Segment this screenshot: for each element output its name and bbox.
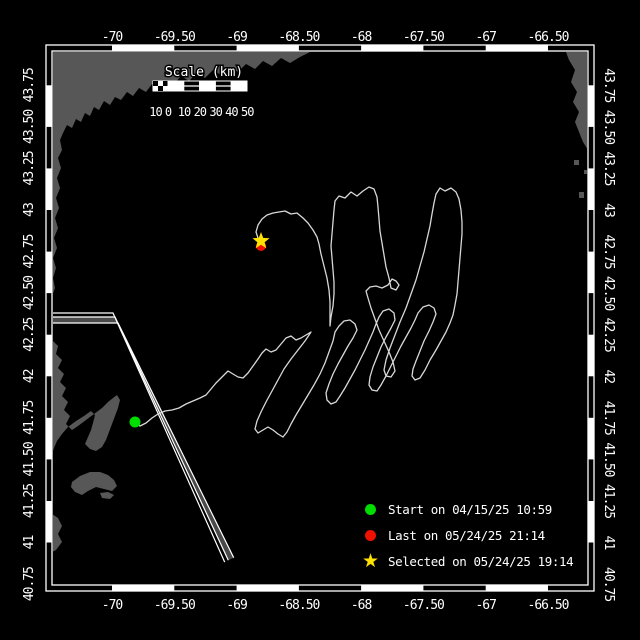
lat-tick-label-left: 43.25 <box>22 151 37 185</box>
legend-start-label: Start on 04/15/25 10:59 <box>388 502 552 517</box>
lat-tick-label-right: 42 <box>601 369 616 383</box>
lat-tick-label-left: 41.75 <box>22 401 37 435</box>
border-segment-right <box>588 210 594 252</box>
scale-checker-cell <box>153 81 158 86</box>
scale-bar-label: 40 <box>225 105 238 119</box>
lat-tick-label-left: 42 <box>22 369 37 383</box>
lon-tick-label-top: -67.50 <box>403 30 444 45</box>
scale-bar-label: 50 <box>241 105 254 119</box>
glider-track-map-screen: Scale (km)1001020304050-70-70-69.50-69.5… <box>0 0 640 640</box>
lat-tick-label-right: 41.50 <box>601 442 616 476</box>
lat-tick-label-left: 42.75 <box>22 234 37 268</box>
lat-tick-label-right: 43.25 <box>601 151 616 185</box>
border-segment-top <box>174 45 236 51</box>
lat-tick-label-left: 42.50 <box>22 276 37 310</box>
lat-tick-label-left: 41.25 <box>22 484 37 518</box>
lat-tick-label-right: 41 <box>601 536 616 550</box>
lon-tick-label-bottom: -70 <box>102 598 123 613</box>
start-position-marker[interactable] <box>130 417 141 428</box>
scale-checker-cell <box>158 86 163 91</box>
lat-tick-label-left: 41 <box>22 536 37 550</box>
scale-bar-label: 30 <box>209 105 222 119</box>
lon-tick-label-top: -70 <box>102 30 123 45</box>
lon-tick-label-bottom: -68.50 <box>278 598 319 613</box>
border-segment-right <box>588 127 594 168</box>
lat-tick-label-right: 43 <box>601 203 616 217</box>
border-segment-right <box>588 376 594 418</box>
lon-tick-label-bottom: -67 <box>475 598 496 613</box>
border-segment-left <box>46 293 52 335</box>
scale-bar-title: Scale (km) <box>165 65 243 80</box>
lat-tick-label-right: 40.75 <box>601 567 616 601</box>
legend-selected-label: Selected on 05/24/25 19:14 <box>388 554 573 569</box>
scale-bar-label: 0 <box>165 105 172 119</box>
scale-bar-label: 10 <box>149 105 162 119</box>
border-segment-top <box>423 45 485 51</box>
border-segment-right <box>588 459 594 501</box>
lat-tick-label-left: 43 <box>22 203 37 217</box>
border-segment-right <box>588 45 594 85</box>
border-segment-top <box>46 45 112 51</box>
islet <box>574 160 579 165</box>
last-dot-icon <box>362 530 379 541</box>
border-segment-right <box>588 293 594 335</box>
border-segment-left <box>46 127 52 168</box>
lon-tick-label-bottom: -66.50 <box>528 598 569 613</box>
islet <box>579 192 584 198</box>
lat-tick-label-right: 42.75 <box>601 235 616 269</box>
border-segment-bottom <box>423 585 485 591</box>
lat-tick-label-right: 43.50 <box>601 110 616 144</box>
lon-tick-label-bottom: -67.50 <box>403 598 444 613</box>
border-segment-top <box>299 45 361 51</box>
lat-tick-label-left: 43.75 <box>22 68 37 102</box>
lat-tick-label-right: 41.75 <box>601 401 616 435</box>
lon-tick-label-top: -69 <box>226 30 247 45</box>
scale-bar-cell <box>231 81 247 91</box>
legend-row-selected: ★ Selected on 05/24/25 19:14 <box>362 548 592 574</box>
border-segment-left <box>46 210 52 252</box>
legend-last-label: Last on 05/24/25 21:14 <box>388 528 545 543</box>
lat-tick-label-left: 43.50 <box>22 110 37 144</box>
lon-tick-label-top: -66.50 <box>528 30 569 45</box>
lat-tick-label-left: 42.25 <box>22 317 37 351</box>
border-segment-left <box>46 45 52 85</box>
scale-checker-cell <box>163 81 168 86</box>
scale-bar-cell <box>168 81 184 91</box>
lon-tick-label-bottom: -68 <box>351 598 372 613</box>
border-segment-top <box>548 45 594 51</box>
lat-tick-label-right: 41.25 <box>601 484 616 518</box>
lon-tick-label-top: -67 <box>475 30 496 45</box>
scale-bar-label: 10 <box>178 105 191 119</box>
lon-tick-label-top: -68 <box>351 30 372 45</box>
lat-tick-label-right: 42.50 <box>601 276 616 310</box>
lon-tick-label-bottom: -69.50 <box>154 598 195 613</box>
lat-tick-label-left: 41.50 <box>22 442 37 476</box>
start-dot-icon <box>362 504 379 515</box>
border-segment-left <box>46 459 52 501</box>
lat-tick-label-right: 42.25 <box>601 318 616 352</box>
lat-tick-label-right: 43.75 <box>601 68 616 102</box>
lon-tick-label-top: -68.50 <box>278 30 319 45</box>
border-segment-left <box>46 543 52 586</box>
border-segment-bottom <box>548 585 594 591</box>
legend: Start on 04/15/25 10:59 Last on 05/24/25… <box>362 496 592 574</box>
border-segment-left <box>46 376 52 418</box>
scale-bar-cell <box>200 81 216 91</box>
lat-tick-label-left: 40.75 <box>22 567 37 601</box>
border-segment-bottom <box>46 585 112 591</box>
border-segment-bottom <box>299 585 361 591</box>
lon-tick-label-top: -69.50 <box>154 30 195 45</box>
legend-row-last: Last on 05/24/25 21:14 <box>362 522 592 548</box>
scale-bar-label: 20 <box>194 105 207 119</box>
legend-row-start: Start on 04/15/25 10:59 <box>362 496 592 522</box>
selected-star-icon: ★ <box>362 556 379 567</box>
lon-tick-label-bottom: -69 <box>226 598 247 613</box>
border-segment-bottom <box>174 585 236 591</box>
